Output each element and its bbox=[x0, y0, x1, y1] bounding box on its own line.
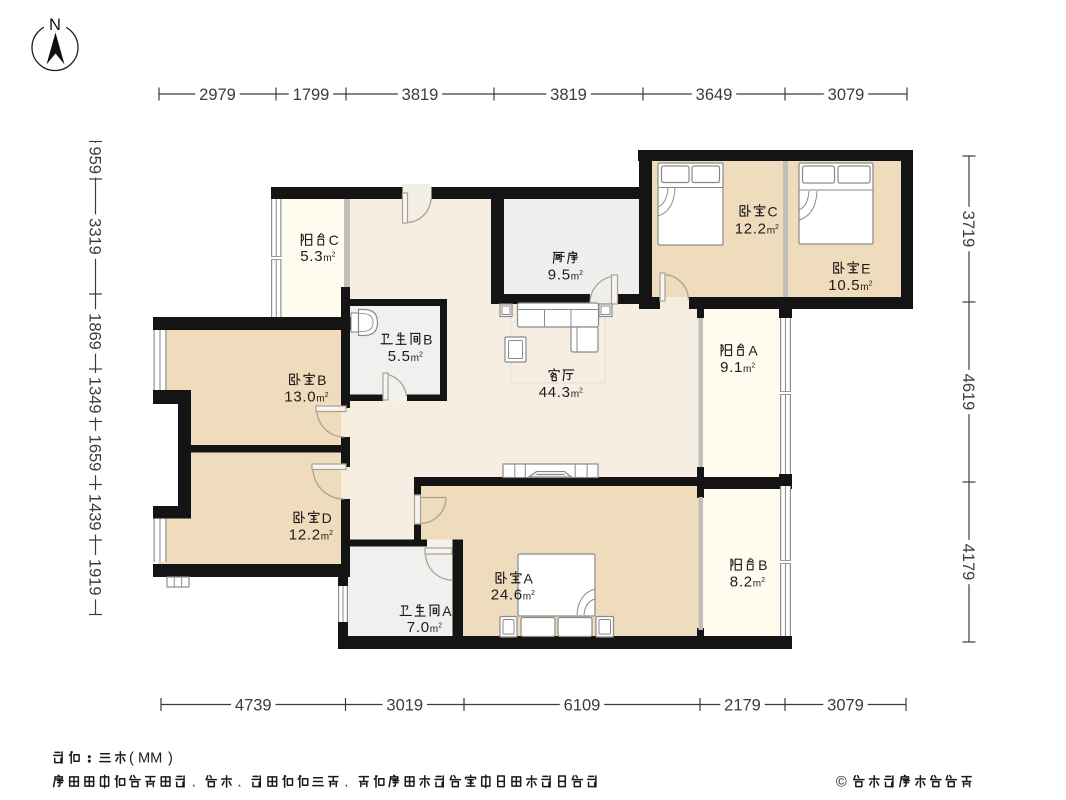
svg-text:A: A bbox=[442, 603, 452, 619]
svg-text:3819: 3819 bbox=[402, 86, 439, 104]
svg-text:1799: 1799 bbox=[293, 86, 330, 104]
svg-text:3319: 3319 bbox=[86, 218, 104, 255]
svg-text:2179: 2179 bbox=[724, 696, 761, 714]
svg-text:3819: 3819 bbox=[550, 86, 587, 104]
svg-text:3079: 3079 bbox=[828, 86, 865, 104]
svg-text:5.3m2: 5.3m2 bbox=[300, 248, 336, 265]
svg-text:5.5m2: 5.5m2 bbox=[388, 348, 424, 365]
svg-text:N: N bbox=[49, 16, 61, 34]
svg-text:): ) bbox=[168, 750, 173, 766]
svg-text:1869: 1869 bbox=[86, 313, 104, 350]
svg-text:3079: 3079 bbox=[827, 696, 864, 714]
svg-text:7.0m2: 7.0m2 bbox=[407, 619, 443, 636]
svg-text:A: A bbox=[524, 570, 534, 586]
svg-text:B: B bbox=[317, 372, 326, 388]
svg-text:C: C bbox=[768, 203, 778, 219]
svg-text:4619: 4619 bbox=[959, 374, 977, 411]
svg-text:B: B bbox=[423, 331, 432, 347]
svg-text:A: A bbox=[748, 342, 758, 358]
svg-text:1349: 1349 bbox=[86, 377, 104, 414]
svg-text:1919: 1919 bbox=[86, 559, 104, 596]
svg-text:D: D bbox=[322, 510, 332, 526]
svg-text:C: C bbox=[329, 232, 339, 248]
svg-text:4179: 4179 bbox=[959, 544, 977, 581]
svg-text:9.1m2: 9.1m2 bbox=[720, 359, 756, 376]
svg-text:©: © bbox=[836, 774, 847, 790]
svg-text:E: E bbox=[861, 260, 870, 276]
svg-text:3019: 3019 bbox=[386, 696, 423, 714]
svg-text:MM: MM bbox=[138, 750, 162, 766]
svg-text:(: ( bbox=[129, 750, 134, 766]
svg-text:2979: 2979 bbox=[199, 86, 236, 104]
svg-text:3649: 3649 bbox=[696, 86, 733, 104]
svg-text:8.2m2: 8.2m2 bbox=[730, 574, 766, 591]
svg-text:1439: 1439 bbox=[86, 494, 104, 531]
svg-text:6109: 6109 bbox=[564, 696, 601, 714]
svg-text:959: 959 bbox=[86, 146, 104, 174]
svg-text:9.5m2: 9.5m2 bbox=[548, 267, 584, 284]
svg-text:B: B bbox=[758, 557, 767, 573]
svg-text:4739: 4739 bbox=[235, 696, 272, 714]
svg-text:1659: 1659 bbox=[86, 435, 104, 472]
svg-text:3719: 3719 bbox=[959, 211, 977, 248]
